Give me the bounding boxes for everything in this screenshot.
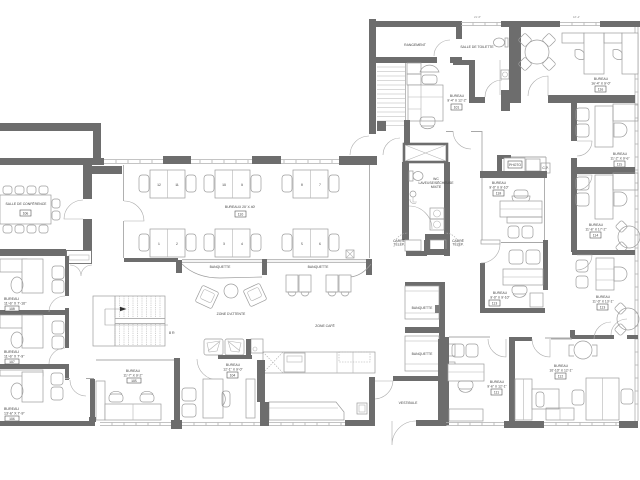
svg-text:8 R: 8 R [169,331,175,335]
svg-text:BUREAU: BUREAU [492,181,507,185]
svg-text:BANQUETTE: BANQUETTE [412,306,433,310]
svg-text:11'-7" X 9'-2": 11'-7" X 9'-2" [123,374,143,378]
svg-text:BUREAUX 20' X 40': BUREAUX 20' X 40' [225,205,256,209]
svg-text:BUREAU: BUREAU [596,295,611,299]
svg-text:7: 7 [319,183,321,187]
svg-text:BUREAU: BUREAU [594,77,609,81]
svg-text:105: 105 [131,379,137,383]
svg-text:BUREAU: BUREAU [613,152,628,156]
svg-text:BUREAU: BUREAU [490,380,505,384]
svg-text:BUREAU: BUREAU [226,363,241,367]
svg-text:VESTIBULE: VESTIBULE [399,401,418,405]
svg-text:BANQUETTE: BANQUETTE [412,352,433,356]
svg-text:BANQUETTE: BANQUETTE [210,265,231,269]
svg-text:SALLE DE CONFÉRENCE: SALLE DE CONFÉRENCE [6,202,48,206]
svg-text:BUREAU: BUREAU [554,364,569,368]
svg-text:101: 101 [454,106,460,110]
svg-text:11'-0" X 13'-1": 11'-0" X 13'-1" [592,300,614,304]
svg-text:RANGEMENT: RANGEMENT [404,43,426,47]
svg-text:9'-0" X 9'-10": 9'-0" X 9'-10" [489,186,509,190]
svg-text:9'-0" X 9'-10": 9'-0" X 9'-10" [490,296,510,300]
svg-text:3: 3 [223,242,225,246]
svg-text:12: 12 [157,183,161,187]
svg-text:114: 114 [593,234,599,238]
svg-text:2: 2 [176,242,178,246]
svg-text:10: 10 [222,183,226,187]
svg-text:113: 113 [492,302,498,306]
svg-text:104: 104 [230,374,236,378]
svg-text:11'-6" X 17'-2": 11'-6" X 17'-2" [585,228,607,232]
svg-text:11'-2" X 9'-6": 11'-2" X 9'-6" [610,157,630,161]
svg-text:16'-4" X 9'-0": 16'-4" X 9'-0" [591,82,611,86]
svg-text:9'-4" X 12'-2": 9'-4" X 12'-2" [447,99,467,103]
svg-text:BUREAU: BUREAU [4,350,19,354]
svg-text:11: 11 [175,183,179,187]
svg-text:112: 112 [558,375,564,379]
svg-text:8: 8 [301,183,303,187]
svg-text:BUREAU: BUREAU [126,369,141,373]
svg-text:113: 113 [600,306,606,310]
svg-text:MIXTE: MIXTE [431,185,442,189]
svg-text:9'-6" X 12'-1": 9'-6" X 12'-1" [487,385,507,389]
svg-text:BUREAU: BUREAU [4,297,19,301]
svg-text:1: 1 [158,242,160,246]
svg-text:ZONE D'ATTENTE: ZONE D'ATTENTE [217,312,246,316]
svg-text:11'-6" X 7'-9": 11'-6" X 7'-9" [4,355,25,359]
svg-text:4: 4 [241,242,243,246]
svg-text:16'-4": 16'-4" [573,15,580,19]
svg-text:PHOTO: PHOTO [509,163,521,167]
svg-text:110: 110 [238,213,244,217]
svg-text:12'-1" X 9'-0": 12'-1" X 9'-0" [223,368,243,372]
svg-text:106: 106 [9,417,15,421]
svg-text:BANQUETTE: BANQUETTE [308,265,329,269]
svg-text:116: 116 [598,88,604,92]
svg-text:115: 115 [617,163,623,167]
svg-text:C.P.: C.P. [542,166,548,170]
svg-text:9: 9 [241,183,243,187]
svg-text:BUREAU: BUREAU [493,291,508,295]
svg-text:SALLE DE TOILETTE: SALLE DE TOILETTE [460,45,494,49]
svg-text:107: 107 [9,360,15,364]
svg-text:11'-6" X 7'-10": 11'-6" X 7'-10" [4,302,27,306]
svg-text:10'-10" X 12'-1": 10'-10" X 12'-1" [549,369,573,373]
svg-text:TÉLÉP.: TÉLÉP. [393,243,404,247]
svg-text:111: 111 [494,391,499,395]
svg-text:5: 5 [301,242,303,246]
svg-text:108: 108 [9,307,15,311]
svg-text:BUREAU: BUREAU [4,407,19,411]
svg-text:118: 118 [496,192,502,196]
svg-text:13'-6" X 7'-9": 13'-6" X 7'-9" [4,412,25,416]
svg-text:21'-0": 21'-0" [474,15,481,19]
svg-text:106: 106 [23,212,29,216]
svg-text:TÉLÉP.: TÉLÉP. [452,243,463,247]
svg-text:6: 6 [319,242,321,246]
svg-text:BUREAU: BUREAU [589,223,604,227]
svg-text:ZONE CAFÉ: ZONE CAFÉ [315,324,335,328]
svg-text:BUREAU: BUREAU [450,94,465,98]
